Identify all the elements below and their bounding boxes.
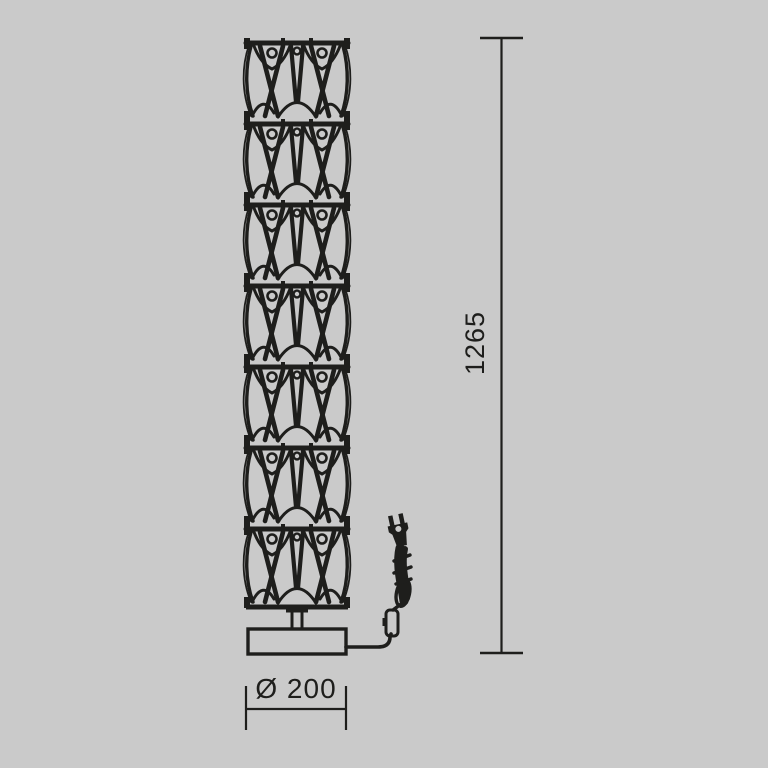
power-cord <box>346 513 412 647</box>
lamp-module <box>244 443 351 527</box>
diameter-dimension-label: Ø 200 <box>255 673 336 704</box>
cord-path <box>346 634 391 647</box>
lamp-stem <box>286 609 308 629</box>
height-dimension-label: 1265 <box>460 311 490 375</box>
lamp-elevation <box>244 38 351 654</box>
cord-coil-icon <box>394 548 412 608</box>
lamp-module <box>244 200 351 284</box>
lamp-module <box>244 281 351 365</box>
dimension-drawing: 1265 Ø 200 <box>0 0 768 768</box>
lamp-base <box>248 629 346 654</box>
lamp-module <box>244 524 351 608</box>
drawing-svg: 1265 Ø 200 <box>0 0 768 768</box>
power-plug-icon <box>386 513 412 548</box>
inline-switch-icon <box>383 610 399 636</box>
diameter-dimension: Ø 200 <box>246 673 346 730</box>
lamp-module <box>244 362 351 446</box>
lamp-module <box>244 38 351 122</box>
lamp-module <box>244 119 351 203</box>
height-dimension: 1265 <box>460 38 523 653</box>
lamp-module-stack <box>244 38 351 608</box>
